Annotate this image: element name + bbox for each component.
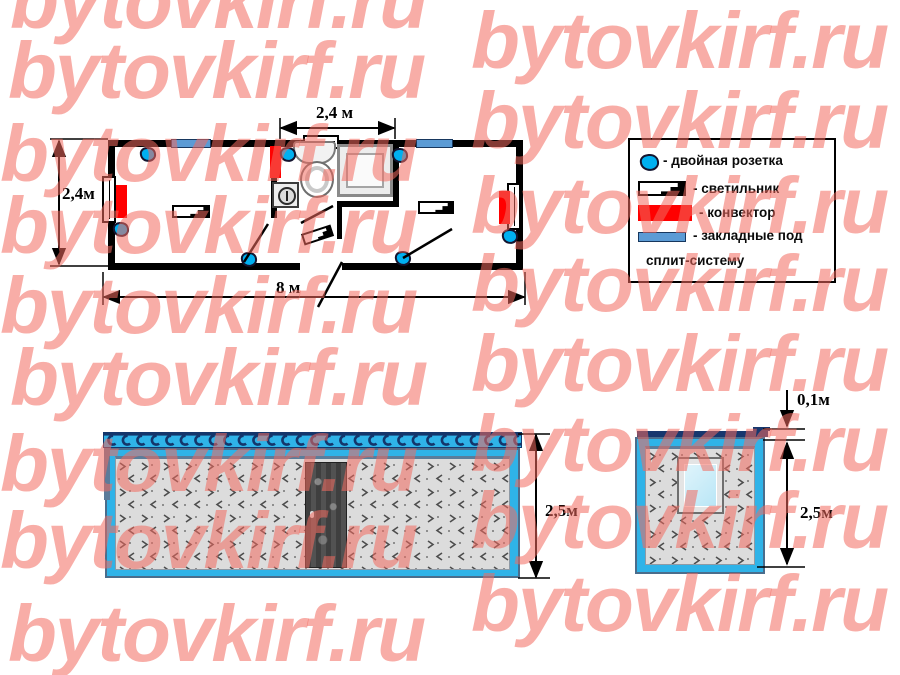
split-mount-icon [638, 232, 686, 242]
legend-item-label: - конвектор [699, 205, 776, 220]
convector-icon [638, 205, 692, 221]
plan-dimensions [50, 118, 525, 305]
dimension-lines [0, 0, 900, 675]
dim-label-end-height: 2,5м [800, 503, 833, 523]
double-socket-icon [639, 153, 660, 172]
legend-item-label: - закладные под [693, 228, 803, 243]
legend-box: - двойная розетка - светильник - конвект… [628, 138, 836, 283]
dim-label-plan-depth: 2,4м [62, 184, 95, 204]
light-fixture-icon [638, 181, 686, 196]
dim-label-roof-thickness: 0,1м [797, 390, 830, 410]
drawing-canvas: 2,4 м 2,4м 8 м 2,5м 0,1м 2,5м - двойная … [0, 0, 900, 675]
dim-label-side-height: 2,5м [545, 501, 578, 521]
legend-item-label: - светильник [693, 181, 779, 196]
dim-label-plan-width: 2,4 м [316, 103, 353, 123]
legend-item-label: сплит-систему [646, 253, 744, 268]
legend-item-label: - двойная розетка [663, 153, 783, 168]
end-elevation-dimensions [757, 390, 805, 567]
dim-label-plan-length: 8 м [276, 278, 300, 298]
